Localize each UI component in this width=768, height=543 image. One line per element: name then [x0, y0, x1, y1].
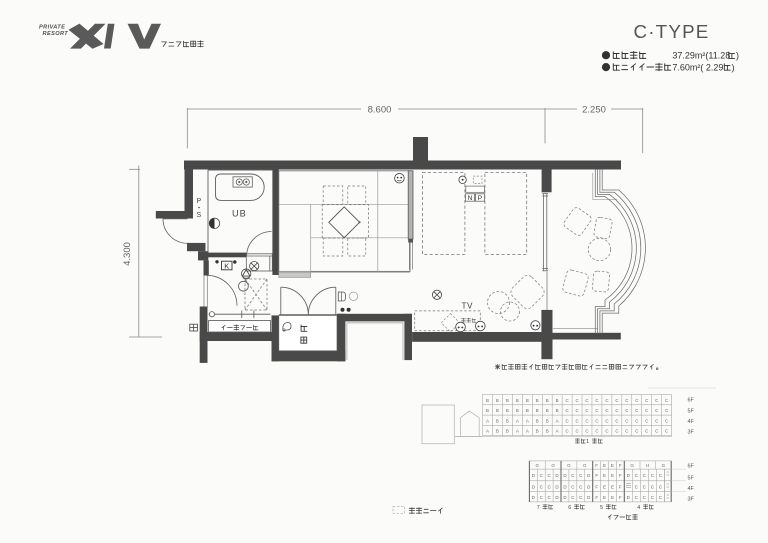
- svg-text:C: C: [566, 408, 569, 413]
- svg-text:1: 1: [586, 439, 589, 445]
- svg-text:C: C: [605, 398, 608, 403]
- svg-text:C: C: [566, 418, 569, 423]
- svg-text:C: C: [655, 398, 658, 403]
- svg-text:C: C: [655, 408, 658, 413]
- svg-text:E: E: [611, 463, 614, 468]
- svg-text:A: A: [526, 418, 529, 423]
- svg-text:F: F: [595, 485, 598, 490]
- svg-text:A: A: [556, 418, 559, 423]
- svg-text:B: B: [496, 418, 499, 423]
- svg-text:E: E: [603, 463, 606, 468]
- svg-text:7: 7: [537, 505, 540, 511]
- svg-text:A: A: [486, 429, 489, 434]
- svg-text:3F: 3F: [688, 430, 695, 436]
- svg-text:C: C: [605, 429, 608, 434]
- svg-text:B: B: [496, 398, 499, 403]
- svg-text:C: C: [605, 408, 608, 413]
- svg-text:): ): [736, 51, 739, 61]
- svg-text:N: N: [468, 195, 473, 202]
- svg-text:K: K: [224, 262, 229, 271]
- svg-text:C: C: [625, 408, 628, 413]
- svg-text:B: B: [496, 429, 499, 434]
- svg-text:B: B: [506, 418, 509, 423]
- svg-text:C: C: [615, 418, 618, 423]
- svg-text:C: C: [635, 418, 638, 423]
- svg-text:6: 6: [568, 505, 571, 511]
- svg-text:UB: UB: [232, 209, 247, 219]
- svg-text:B: B: [536, 429, 539, 434]
- svg-text:B: B: [556, 408, 559, 413]
- svg-text:4F: 4F: [688, 419, 695, 425]
- svg-text:4: 4: [637, 505, 640, 511]
- svg-text:B: B: [506, 408, 509, 413]
- svg-text:P: P: [197, 198, 202, 205]
- svg-text:C: C: [595, 408, 598, 413]
- svg-text:C: C: [615, 398, 618, 403]
- svg-text:C: C: [595, 418, 598, 423]
- svg-text:5F: 5F: [688, 475, 695, 481]
- svg-text:C: C: [595, 429, 598, 434]
- svg-text:F: F: [619, 473, 622, 478]
- svg-text:B: B: [546, 408, 549, 413]
- svg-text:C: C: [645, 418, 648, 423]
- svg-text:B: B: [546, 418, 549, 423]
- svg-text:C: C: [625, 429, 628, 434]
- svg-text:C: C: [615, 408, 618, 413]
- svg-text:C: C: [665, 418, 668, 423]
- svg-text:G: G: [551, 463, 555, 468]
- svg-text:C: C: [576, 418, 579, 423]
- svg-text:B: B: [536, 408, 539, 413]
- svg-text:C: C: [635, 408, 638, 413]
- svg-text:G: G: [583, 463, 587, 468]
- svg-text:C: C: [585, 429, 588, 434]
- svg-text:C: C: [635, 429, 638, 434]
- svg-text:E: E: [603, 473, 606, 478]
- svg-text:B: B: [516, 408, 519, 413]
- svg-text:G: G: [662, 463, 666, 468]
- svg-text:G: G: [630, 463, 634, 468]
- svg-text:B: B: [486, 398, 489, 403]
- svg-text:C: C: [645, 429, 648, 434]
- svg-text:C: C: [615, 429, 618, 434]
- svg-text:C: C: [625, 418, 628, 423]
- svg-text:B: B: [536, 398, 539, 403]
- svg-text:C: C: [595, 398, 598, 403]
- svg-text:C: C: [605, 418, 608, 423]
- svg-text:B: B: [536, 418, 539, 423]
- svg-text:B: B: [546, 429, 549, 434]
- svg-text:C: C: [645, 408, 648, 413]
- svg-text:PRIVATE: PRIVATE: [39, 25, 65, 31]
- svg-text:E: E: [611, 473, 614, 478]
- svg-text:4F: 4F: [688, 486, 695, 492]
- svg-text:B: B: [546, 398, 549, 403]
- svg-text:E: E: [603, 485, 606, 490]
- svg-text:H: H: [646, 463, 649, 468]
- svg-text:C: C: [576, 429, 579, 434]
- svg-text:C: C: [566, 429, 569, 434]
- svg-text:B: B: [496, 408, 499, 413]
- svg-text:C: C: [625, 398, 628, 403]
- svg-text:B: B: [526, 398, 529, 403]
- svg-text:37.29m²(11.28: 37.29m²(11.28: [672, 51, 730, 61]
- svg-text:C: C: [665, 398, 668, 403]
- svg-text:C: C: [585, 418, 588, 423]
- svg-text:E: E: [611, 485, 614, 490]
- svg-text:C: C: [576, 408, 579, 413]
- svg-text:TV: TV: [462, 301, 474, 310]
- svg-text:B: B: [506, 398, 509, 403]
- svg-text:C: C: [585, 408, 588, 413]
- svg-text:A: A: [526, 429, 529, 434]
- svg-text:C: C: [665, 408, 668, 413]
- svg-text:B: B: [486, 408, 489, 413]
- svg-text:S: S: [197, 212, 202, 219]
- svg-text:P: P: [478, 195, 483, 202]
- svg-text:4.300: 4.300: [122, 242, 133, 266]
- svg-text:E: E: [603, 495, 606, 500]
- svg-text:2.250: 2.250: [582, 105, 606, 116]
- svg-text:7.60m²( 2.29: 7.60m²( 2.29: [672, 62, 723, 72]
- svg-text:A: A: [516, 429, 519, 434]
- svg-text:6F: 6F: [688, 398, 695, 404]
- svg-text:B: B: [516, 398, 519, 403]
- svg-text:F: F: [619, 495, 622, 500]
- svg-text:8.600: 8.600: [368, 105, 392, 116]
- svg-text:C: C: [566, 398, 569, 403]
- svg-text:F: F: [595, 463, 598, 468]
- svg-text:G: G: [536, 463, 540, 468]
- svg-text:C·TYPE: C·TYPE: [633, 21, 709, 42]
- svg-text:G: G: [567, 463, 571, 468]
- svg-text:C: C: [655, 418, 658, 423]
- svg-text:B: B: [556, 398, 559, 403]
- svg-text:B: B: [506, 429, 509, 434]
- svg-text:B: B: [526, 408, 529, 413]
- svg-text:C: C: [665, 429, 668, 434]
- svg-text:6F: 6F: [688, 463, 695, 469]
- svg-text:A: A: [486, 418, 489, 423]
- svg-text:C: C: [576, 398, 579, 403]
- svg-text:F: F: [619, 485, 622, 490]
- svg-text:C: C: [635, 398, 638, 403]
- svg-text:C: C: [655, 429, 658, 434]
- svg-text:E: E: [611, 495, 614, 500]
- svg-text:A: A: [556, 429, 559, 434]
- svg-text:5F: 5F: [688, 409, 695, 415]
- svg-text:F: F: [595, 473, 598, 478]
- svg-text:): ): [732, 62, 735, 72]
- svg-text:C: C: [585, 398, 588, 403]
- svg-text:F: F: [619, 463, 622, 468]
- svg-text:A: A: [516, 418, 519, 423]
- svg-text:3F: 3F: [688, 497, 695, 503]
- svg-text:C: C: [645, 398, 648, 403]
- svg-text:F: F: [595, 495, 598, 500]
- svg-text:RESORT: RESORT: [43, 31, 69, 37]
- svg-text:5: 5: [600, 505, 603, 511]
